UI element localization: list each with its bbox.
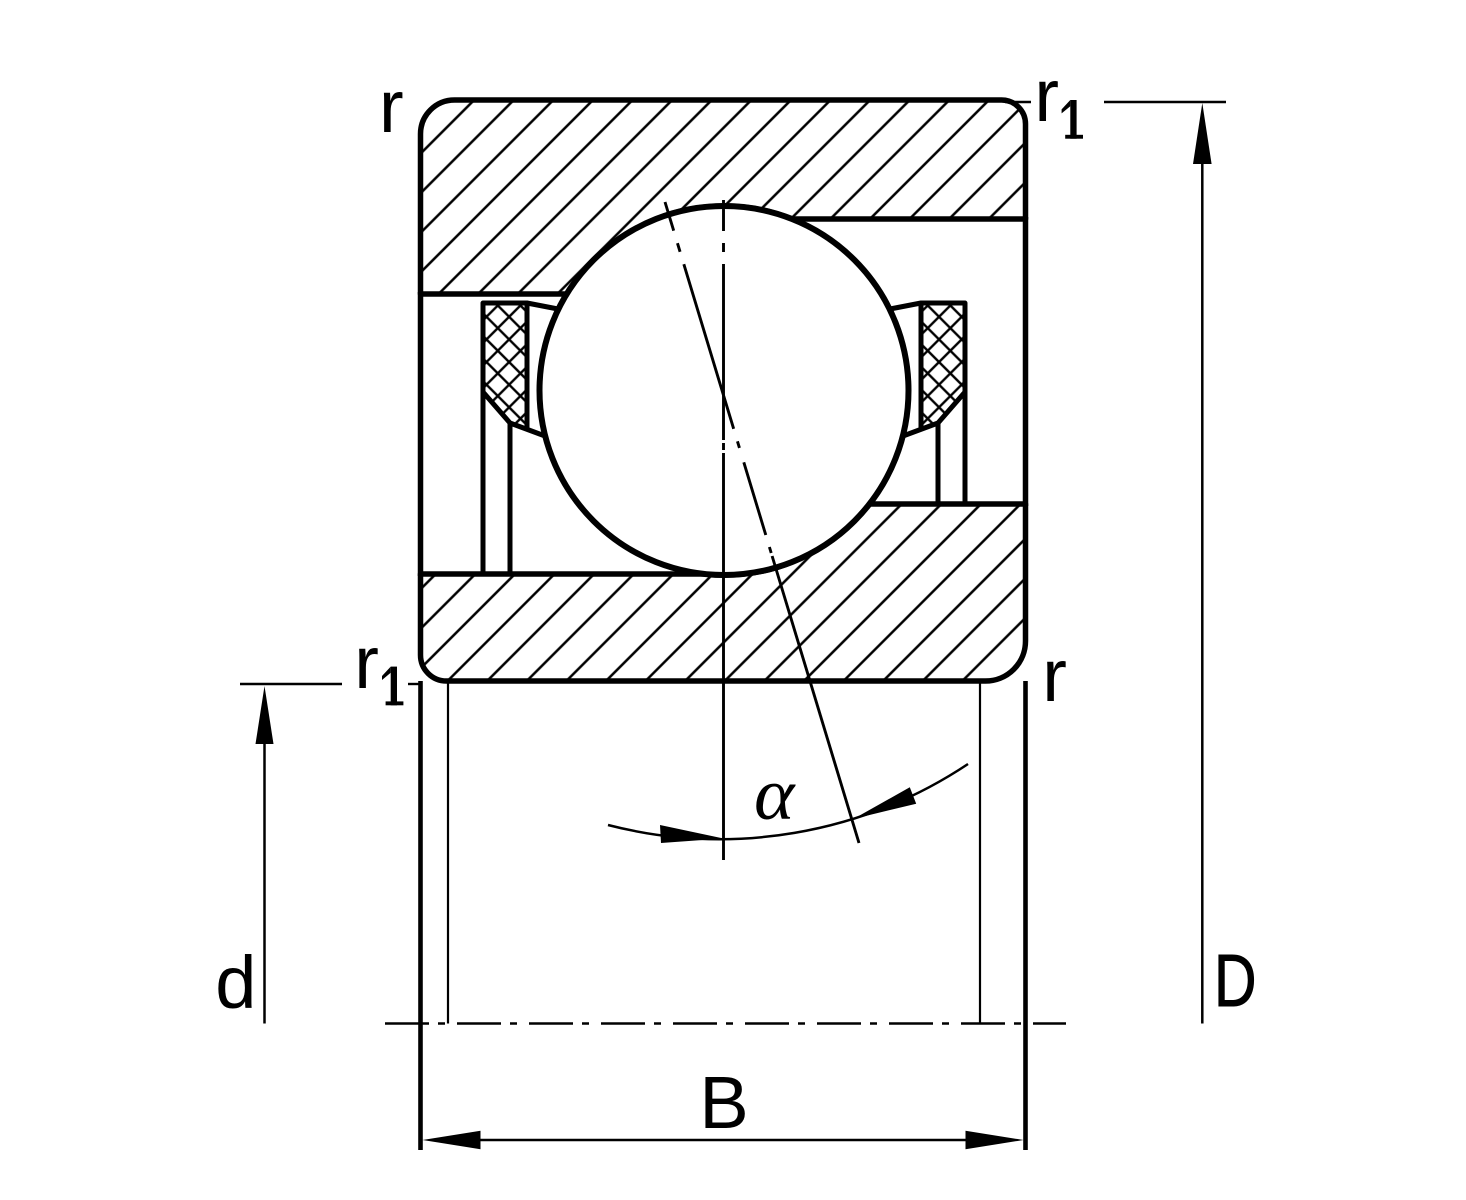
svg-text:d: d [215,941,256,1024]
svg-text:r: r [354,621,379,704]
svg-text:D: D [1214,940,1256,1023]
svg-text:B: B [699,1061,748,1144]
svg-text:r: r [1042,634,1067,717]
svg-text:r: r [379,65,404,148]
svg-text:r: r [1034,54,1059,137]
svg-text:α: α [754,754,796,835]
